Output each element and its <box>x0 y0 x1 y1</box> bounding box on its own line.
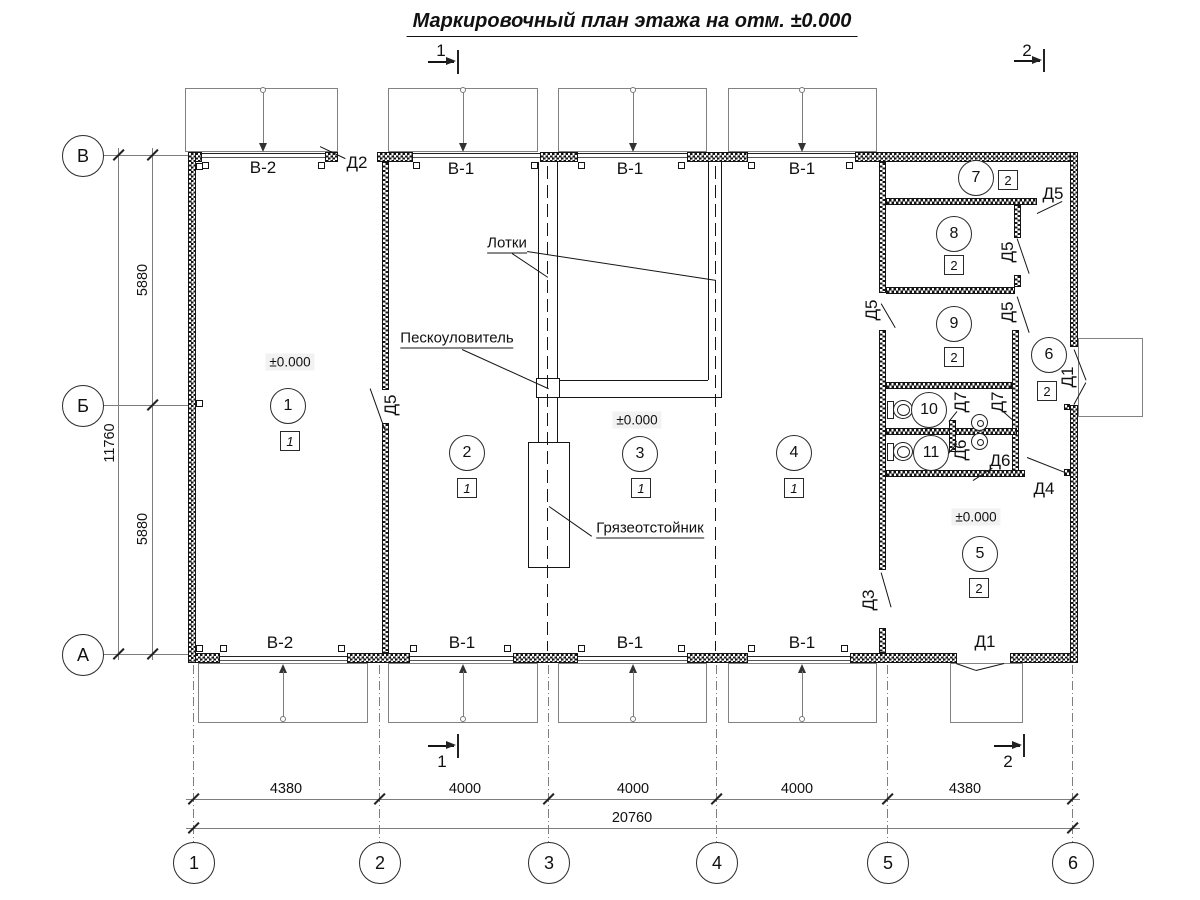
leader-line <box>512 253 548 278</box>
wall-segment <box>886 198 1037 205</box>
jamb <box>748 645 755 652</box>
room-circle-3: 3 <box>622 436 658 472</box>
wall-segment <box>886 470 1025 477</box>
wall-segment <box>347 653 410 663</box>
gate-label: В-1 <box>789 633 815 653</box>
section-mark-label: 1 <box>437 752 446 772</box>
axis-line <box>379 665 380 843</box>
door-label: Д2 <box>347 153 368 173</box>
axis-bubble-2: 2 <box>359 842 401 884</box>
room-circle-8: 8 <box>936 216 972 252</box>
section-mark-label: 2 <box>1022 41 1031 61</box>
room-category-3: 1 <box>631 478 651 498</box>
dimension-line <box>186 799 1080 800</box>
door-label: Д6 <box>951 440 971 461</box>
gate-opening-line <box>578 656 687 661</box>
arrow-origin-dot <box>460 716 466 722</box>
wall-segment <box>886 287 1015 294</box>
direction-arrow <box>802 93 803 146</box>
dim-label: 11760 <box>102 423 118 462</box>
axis-line <box>716 665 717 843</box>
wall-segment <box>687 152 748 162</box>
section-arrow-icon <box>446 57 456 65</box>
door-label: Д6 <box>990 451 1011 471</box>
axis-bubble-a: А <box>62 634 104 676</box>
room-circle-1: 1 <box>270 388 306 424</box>
room-category-6: 2 <box>1037 381 1057 401</box>
dim-label: 4000 <box>449 781 481 797</box>
tray-centerline <box>715 166 717 651</box>
direction-arrow <box>802 671 803 717</box>
dim-label: 5880 <box>135 513 151 545</box>
jamb <box>413 162 420 169</box>
door-label: Д4 <box>1034 479 1055 499</box>
section-mark-label: 1 <box>436 41 445 61</box>
gate-label: В-1 <box>617 633 643 653</box>
jamb <box>841 645 848 652</box>
door-label: Д1 <box>1058 367 1078 388</box>
elevation-mark: ±0.000 <box>612 412 661 429</box>
axis-bubble-1: 1 <box>173 842 215 884</box>
wall-segment <box>1014 205 1021 238</box>
room-circle-7: 7 <box>958 160 994 196</box>
wall-segment <box>687 653 748 663</box>
jamb <box>578 162 585 169</box>
jamb <box>504 645 511 652</box>
section-arrow-icon <box>446 741 456 749</box>
door-label: Д7 <box>951 392 971 413</box>
room-circle-9: 9 <box>936 306 972 342</box>
jamb <box>202 162 209 169</box>
jamb <box>678 162 685 169</box>
room-category-2: 1 <box>457 478 477 498</box>
gate-opening-line <box>220 656 347 661</box>
porch-outline <box>950 663 1023 723</box>
dimension-line <box>118 148 119 660</box>
room-circle-4: 4 <box>776 435 812 471</box>
wall-segment <box>855 152 1078 162</box>
tray-line <box>708 162 709 380</box>
gate-opening-line <box>410 656 513 661</box>
axis-bubble-b: Б <box>62 385 104 427</box>
gate-label: В-2 <box>267 633 293 653</box>
toilet-icon <box>893 442 913 461</box>
gate-label: В-1 <box>448 159 474 179</box>
direction-arrow <box>263 93 264 146</box>
dim-label: 4000 <box>781 781 813 797</box>
wall-segment <box>886 382 1012 389</box>
porch-outline <box>1078 338 1143 417</box>
section-mark-label: 2 <box>1003 752 1012 772</box>
washbasin-icon <box>971 433 988 450</box>
elevation-mark: ±0.000 <box>951 509 1000 526</box>
door-leaf-line <box>1027 457 1066 473</box>
arrow-origin-dot <box>799 716 805 722</box>
jamb <box>846 162 853 169</box>
gate-label: В-1 <box>789 159 815 179</box>
wall-segment <box>879 162 886 293</box>
toilet-icon <box>893 400 913 419</box>
annotation-mud-trap: Грязеотстойник <box>596 520 704 539</box>
jamb <box>531 162 538 169</box>
jamb <box>678 645 685 652</box>
axis-bubble-5: 5 <box>867 842 909 884</box>
leader-line <box>527 251 716 281</box>
door-label: Д1 <box>975 632 996 652</box>
door-label: Д5 <box>381 395 401 416</box>
leader-line <box>462 349 549 389</box>
direction-arrow <box>633 671 634 717</box>
dim-label: 20760 <box>612 810 652 826</box>
arrow-head-down-icon <box>798 143 806 152</box>
wall-segment <box>1014 275 1021 287</box>
room-category-1: 1 <box>280 431 300 451</box>
page-title: Маркировочный план этажа на отм. ±0.000 <box>407 10 858 37</box>
room-category-8: 2 <box>944 255 964 275</box>
room-category-4: 1 <box>784 478 804 498</box>
arrow-head-down-icon <box>459 143 467 152</box>
gate-opening-line <box>748 153 855 158</box>
axis-bubble-6: 6 <box>1052 842 1094 884</box>
jamb <box>578 645 585 652</box>
jamb <box>220 645 227 652</box>
wall-segment <box>879 628 886 653</box>
jamb <box>748 162 755 169</box>
annotation-trays: Лотки <box>487 235 527 254</box>
dimension-line <box>186 828 1080 829</box>
room-category-7: 2 <box>998 170 1018 190</box>
door-leaf-line <box>1016 238 1029 273</box>
door-label: Д5 <box>998 302 1018 323</box>
axis-line <box>102 405 188 406</box>
axis-bubble-v: В <box>62 135 104 177</box>
axis-line <box>887 665 888 843</box>
tray-line <box>560 380 708 381</box>
dim-label: 4380 <box>270 781 302 797</box>
wall-segment <box>377 152 413 162</box>
wall-segment <box>1070 152 1078 347</box>
section-mark-bar <box>457 734 459 758</box>
room-category-5: 2 <box>969 578 989 598</box>
tray-line <box>560 397 722 398</box>
room-circle-10: 10 <box>911 392 947 428</box>
wall-segment <box>540 152 578 162</box>
wall-segment <box>850 653 957 663</box>
room-category-9: 2 <box>944 347 964 367</box>
gate-opening-line <box>748 656 850 661</box>
door-leaf-line <box>1016 296 1029 332</box>
axis-line <box>1072 665 1073 843</box>
wall-segment <box>1010 653 1078 663</box>
gate-opening-line <box>413 153 540 158</box>
room-circle-2: 2 <box>449 435 485 471</box>
dim-label: 5880 <box>135 264 151 296</box>
jamb <box>196 163 203 170</box>
door-label: Д3 <box>859 590 879 611</box>
axis-line <box>548 665 549 843</box>
jamb <box>196 645 203 652</box>
axis-bubble-4: 4 <box>696 842 738 884</box>
direction-arrow <box>283 671 284 717</box>
section-mark-bar <box>1043 49 1045 72</box>
arrow-head-down-icon <box>259 143 267 152</box>
door-label: Д7 <box>988 392 1008 413</box>
direction-arrow <box>633 93 634 146</box>
axis-line <box>193 665 194 843</box>
section-arrow-icon <box>1012 741 1022 749</box>
elevation-mark: ±0.000 <box>265 354 314 371</box>
leader-line <box>1003 411 1013 420</box>
jamb <box>338 645 345 652</box>
section-mark-bar <box>457 50 459 74</box>
gate-label: В-1 <box>449 633 475 653</box>
door-leaf-line <box>880 303 895 328</box>
room-circle-6: 6 <box>1031 337 1067 373</box>
dim-label: 4380 <box>949 781 981 797</box>
arrow-origin-dot <box>280 716 286 722</box>
room-circle-11: 11 <box>913 435 949 471</box>
door-label: Д5 <box>998 242 1018 263</box>
dim-label: 4000 <box>617 781 649 797</box>
tray-line <box>557 398 558 442</box>
tray-centerline <box>547 166 549 651</box>
door-leaf-line <box>880 572 891 607</box>
door-label: Д5 <box>1043 184 1064 204</box>
arrow-origin-dot <box>630 716 636 722</box>
arrow-head-down-icon <box>629 143 637 152</box>
axis-bubble-3: 3 <box>528 842 570 884</box>
direction-arrow <box>463 671 464 717</box>
wall-segment <box>382 162 389 390</box>
gate-opening-line <box>578 153 687 158</box>
jamb <box>318 162 325 169</box>
tray-line <box>721 162 722 398</box>
wall-segment <box>513 653 578 663</box>
jamb <box>196 400 203 407</box>
wall-segment <box>382 423 389 653</box>
room-circle-5: 5 <box>962 536 998 572</box>
gate-label: В-1 <box>617 159 643 179</box>
gate-label: В-2 <box>250 158 276 178</box>
wall-segment <box>879 330 886 570</box>
wall-segment <box>1012 330 1019 477</box>
wall-segment <box>1070 405 1078 663</box>
washbasin-icon <box>971 414 988 431</box>
wall-segment <box>1064 404 1070 410</box>
direction-arrow <box>463 93 464 146</box>
section-arrow-icon <box>1032 56 1042 64</box>
wall-segment <box>188 152 196 663</box>
annotation-sand-trap: Пескоуловитель <box>400 330 513 349</box>
door-label: Д5 <box>862 300 882 321</box>
tray-line <box>557 162 558 378</box>
floor-plan-drawing: Маркировочный план этажа на отм. ±0.000 <box>0 0 1200 900</box>
section-mark-bar <box>1023 734 1025 757</box>
jamb <box>410 645 417 652</box>
tray-line <box>538 398 539 442</box>
